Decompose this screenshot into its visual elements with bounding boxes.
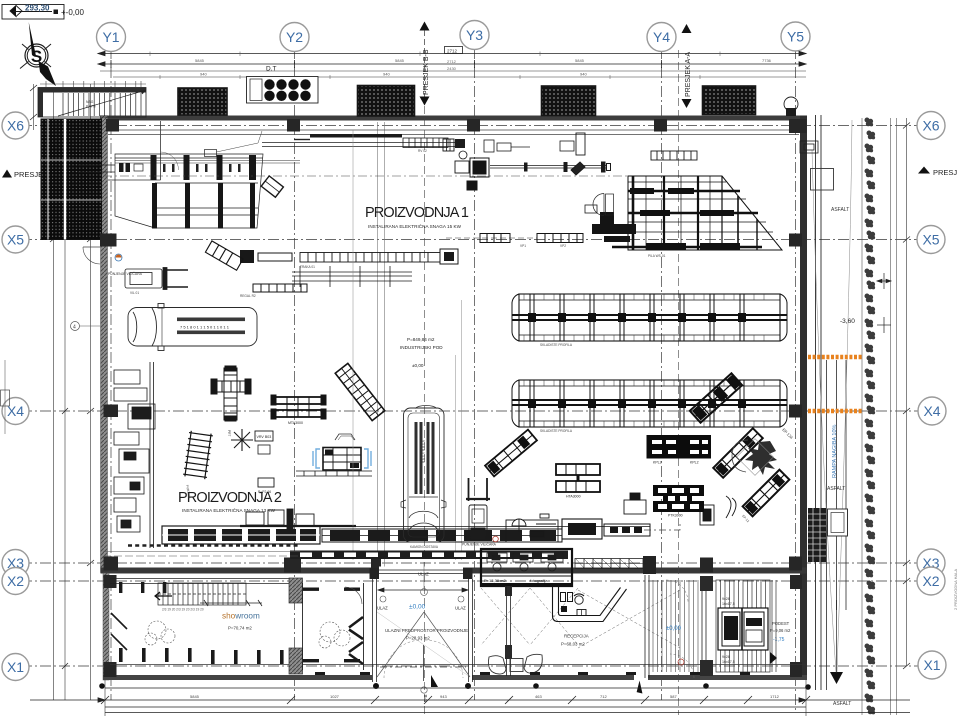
svg-text:2 PROIZVODNA HALA: 2 PROIZVODNA HALA bbox=[953, 569, 958, 610]
svg-text:2712: 2712 bbox=[447, 49, 458, 54]
svg-text:X2: X2 bbox=[922, 573, 939, 589]
svg-text:ULAZ: ULAZ bbox=[418, 572, 429, 577]
svg-text:-1,75: -1,75 bbox=[773, 637, 785, 643]
svg-text:ULAZ: ULAZ bbox=[377, 606, 388, 611]
svg-text:5845: 5845 bbox=[395, 58, 405, 63]
svg-text:PRT: PRT bbox=[227, 430, 231, 436]
svg-text:ULAZNI PREDPROSTOR PROIZVODNJE: ULAZNI PREDPROSTOR PROIZVODNJE bbox=[385, 628, 468, 633]
svg-text:PROIZVODNJA 2: PROIZVODNJA 2 bbox=[178, 490, 282, 506]
svg-text:HTA3000: HTA3000 bbox=[566, 495, 581, 499]
svg-text:KAMION DOSTAVA: KAMION DOSTAVA bbox=[410, 545, 439, 549]
svg-text:2712: 2712 bbox=[447, 59, 457, 64]
svg-text:Y4: Y4 bbox=[653, 29, 670, 45]
svg-text:RECEPCIJA: RECEPCIJA bbox=[564, 634, 589, 639]
svg-text:943: 943 bbox=[440, 694, 447, 699]
svg-text:7 5 1 8 0 1 1 1 5 0 1 1 0 1: 7 5 1 8 0 1 1 1 5 0 1 1 0 1 1 bbox=[180, 325, 230, 330]
svg-text:PUNJENJE VILIČARA: PUNJENJE VILIČARA bbox=[462, 542, 497, 547]
svg-text:RV 02: RV 02 bbox=[418, 149, 427, 153]
svg-text:REGAL R2: REGAL R2 bbox=[240, 294, 256, 298]
svg-text:463: 463 bbox=[535, 694, 542, 699]
svg-text:INSTALIRANA ELEKTRIČNA SNAGA 1: INSTALIRANA ELEKTRIČNA SNAGA 15 KW bbox=[368, 223, 462, 229]
svg-text:PROIZVODNJA 1: PROIZVODNJA 1 bbox=[365, 205, 469, 221]
svg-text:±0,00: ±0,00 bbox=[412, 363, 424, 368]
svg-text:5845: 5845 bbox=[575, 58, 585, 63]
svg-text:TRAKA 01: TRAKA 01 bbox=[300, 265, 315, 269]
svg-text:X4: X4 bbox=[923, 403, 940, 419]
svg-text:±0,00: ±0,00 bbox=[409, 604, 426, 611]
svg-text:2/3 19 20 2/3 19 20 2/3 19 20: 2/3 19 20 2/3 19 20 2/3 19 20 bbox=[162, 608, 204, 612]
svg-text:ASFALT: ASFALT bbox=[833, 701, 851, 707]
svg-text:Y5: Y5 bbox=[787, 29, 804, 45]
svg-text:X6: X6 bbox=[7, 118, 24, 134]
svg-text:P=70,74 m2: P=70,74 m2 bbox=[228, 626, 252, 631]
svg-text:Y2: Y2 bbox=[286, 29, 303, 45]
svg-text:NAG: NAG bbox=[86, 100, 94, 104]
svg-text:INDUSTRIJSKI POD: INDUSTRIJSKI POD bbox=[400, 345, 443, 350]
svg-text:940: 940 bbox=[200, 72, 207, 77]
svg-text:SKLADISTE PROFILA: SKLADISTE PROFILA bbox=[540, 343, 573, 347]
svg-text:D.T: D.T bbox=[266, 66, 277, 73]
svg-text:P=9,06 m2: P=9,06 m2 bbox=[770, 628, 791, 633]
svg-text:ULAZ: ULAZ bbox=[455, 606, 466, 611]
svg-text:PODEST: PODEST bbox=[772, 621, 790, 626]
svg-text:showroom: showroom bbox=[222, 612, 260, 621]
svg-text:940: 940 bbox=[580, 72, 587, 77]
svg-text:RAMPA NAGIBA 10%: RAMPA NAGIBA 10% bbox=[832, 424, 838, 478]
svg-text:5 1 0 8 1 1 5 0: 5 1 0 8 1 1 5 0 bbox=[421, 440, 425, 463]
svg-text:PRESJEK A-A: PRESJEK A-A bbox=[685, 52, 692, 97]
svg-text:4: 4 bbox=[73, 325, 76, 331]
svg-text:+-0,00: +-0,00 bbox=[61, 8, 84, 17]
svg-text:P=13,38 m2: P=13,38 m2 bbox=[484, 578, 506, 583]
svg-text:ASFALT: ASFALT bbox=[827, 486, 845, 492]
svg-text:VIL 01: VIL 01 bbox=[130, 291, 139, 295]
svg-text:X5: X5 bbox=[922, 232, 939, 248]
svg-text:Y3: Y3 bbox=[466, 27, 483, 43]
svg-text:MTA3000: MTA3000 bbox=[288, 421, 303, 425]
svg-text:PRESJEK B-B: PRESJEK B-B bbox=[423, 49, 430, 95]
svg-text:2430: 2430 bbox=[447, 66, 457, 71]
svg-text:1027: 1027 bbox=[330, 694, 340, 699]
svg-text:1712: 1712 bbox=[770, 694, 780, 699]
svg-text:9x28: 9x28 bbox=[722, 597, 730, 601]
svg-text:VRV B03: VRV B03 bbox=[257, 435, 272, 439]
svg-text:VP2: VP2 bbox=[560, 244, 566, 248]
svg-text:293,30: 293,30 bbox=[25, 4, 50, 13]
svg-text:PUNJENJE VILIČARA: PUNJENJE VILIČARA bbox=[108, 271, 143, 276]
svg-text:Y1: Y1 bbox=[102, 29, 119, 45]
svg-text:PTK3000: PTK3000 bbox=[668, 514, 683, 518]
svg-text:ASFALT: ASFALT bbox=[831, 207, 849, 213]
svg-text:5845: 5845 bbox=[190, 694, 200, 699]
svg-text:SKLADISTE PROFILA: SKLADISTE PROFILA bbox=[540, 429, 573, 433]
svg-text:X1: X1 bbox=[7, 659, 24, 675]
svg-text:KPL2: KPL2 bbox=[690, 461, 699, 465]
svg-text:9x28: 9x28 bbox=[722, 655, 730, 659]
svg-text:±0,00: ±0,00 bbox=[666, 626, 682, 632]
svg-text:16x17,5: 16x17,5 bbox=[722, 602, 735, 606]
svg-text:5845: 5845 bbox=[195, 58, 205, 63]
svg-text:X2: X2 bbox=[7, 573, 24, 589]
svg-text:PRESJ: PRESJ bbox=[933, 168, 957, 177]
svg-text:KPL2: KPL2 bbox=[653, 461, 662, 465]
svg-text:X5: X5 bbox=[7, 232, 24, 248]
svg-text:712: 712 bbox=[600, 694, 607, 699]
svg-text:P=28,93 m2: P=28,93 m2 bbox=[406, 636, 430, 641]
svg-text:fotografija: fotografija bbox=[530, 578, 548, 583]
svg-text:INSTALIRANA ELEKTRIČNA SNAGA 1: INSTALIRANA ELEKTRIČNA SNAGA 13 KW bbox=[182, 507, 276, 513]
svg-text:VP1: VP1 bbox=[520, 244, 526, 248]
svg-text:587: 587 bbox=[670, 694, 677, 699]
svg-text:940: 940 bbox=[383, 72, 390, 77]
svg-text:P=849,84 m2: P=849,84 m2 bbox=[407, 337, 435, 342]
svg-text:P=68,03 m2: P=68,03 m2 bbox=[561, 642, 585, 647]
svg-text:-3,60: -3,60 bbox=[840, 318, 855, 325]
svg-text:X1: X1 bbox=[923, 657, 940, 673]
svg-text:16x17,5: 16x17,5 bbox=[722, 660, 735, 664]
svg-text:PILA WS-01: PILA WS-01 bbox=[648, 254, 666, 258]
svg-text:X6: X6 bbox=[922, 118, 939, 134]
svg-text:7736: 7736 bbox=[762, 58, 772, 63]
